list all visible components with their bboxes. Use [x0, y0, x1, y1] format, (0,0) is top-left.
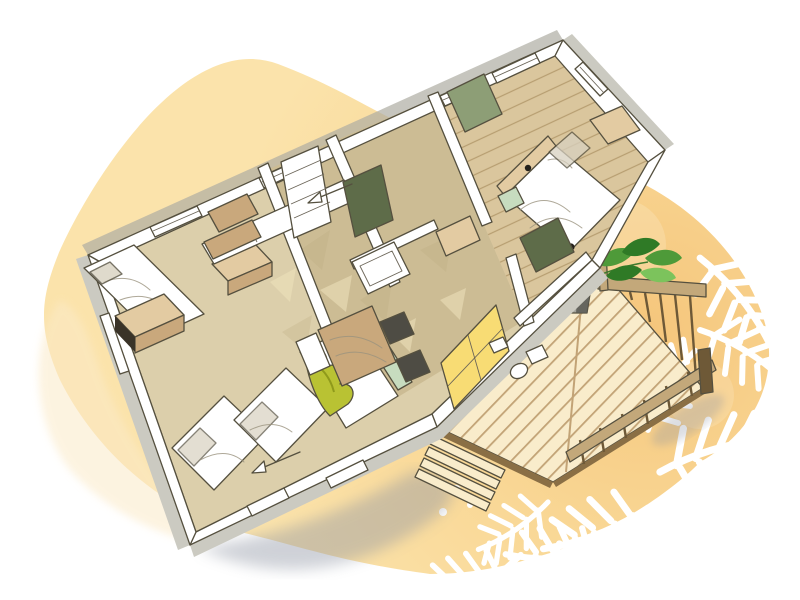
cushion-dark [525, 165, 531, 171]
illustration-canvas [0, 0, 800, 600]
floorplan-illustration [0, 0, 800, 600]
railing-corner-post [698, 348, 713, 394]
